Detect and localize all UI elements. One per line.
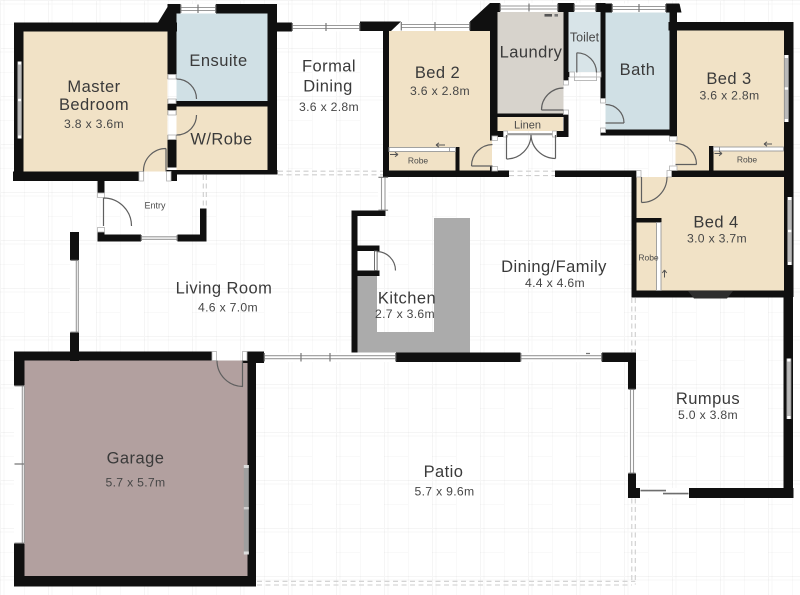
svg-text:Bed 4: Bed 4 <box>693 214 738 232</box>
svg-text:3.6 x 2.8m: 3.6 x 2.8m <box>299 100 359 114</box>
svg-text:Living Room: Living Room <box>176 280 273 298</box>
svg-text:Bedroom: Bedroom <box>59 96 129 114</box>
svg-text:Patio: Patio <box>424 463 464 481</box>
svg-text:Garage: Garage <box>107 450 165 468</box>
svg-text:3.0 x 3.7m: 3.0 x 3.7m <box>687 232 747 246</box>
svg-text:Master: Master <box>67 78 120 96</box>
svg-text:4.6 x 7.0m: 4.6 x 7.0m <box>198 301 258 315</box>
svg-text:Rumpus: Rumpus <box>676 390 740 408</box>
svg-text:5.7 x 9.6m: 5.7 x 9.6m <box>415 485 475 499</box>
svg-text:Dining/Family: Dining/Family <box>501 258 607 276</box>
svg-text:Toilet: Toilet <box>570 31 600 45</box>
svg-text:3.8 x 3.6m: 3.8 x 3.6m <box>64 117 124 131</box>
svg-text:Robe: Robe <box>408 156 429 166</box>
svg-text:Formal: Formal <box>302 58 356 76</box>
svg-text:W/Robe: W/Robe <box>190 131 252 149</box>
svg-text:4.4 x 4.6m: 4.4 x 4.6m <box>525 276 585 290</box>
svg-text:Robe: Robe <box>737 155 758 165</box>
svg-text:5.0 x 3.8m: 5.0 x 3.8m <box>678 408 738 422</box>
svg-text:2.7 x 3.6m: 2.7 x 3.6m <box>375 307 435 321</box>
svg-text:Laundry: Laundry <box>500 44 563 62</box>
svg-text:5.7 x 5.7m: 5.7 x 5.7m <box>106 476 166 490</box>
svg-text:3.6 x 2.8m: 3.6 x 2.8m <box>700 89 760 103</box>
svg-text:Entry: Entry <box>144 201 166 211</box>
svg-text:Bath: Bath <box>620 61 656 79</box>
svg-text:Dining: Dining <box>303 78 352 96</box>
svg-text:3.6 x 2.8m: 3.6 x 2.8m <box>410 84 470 98</box>
svg-text:Kitchen: Kitchen <box>378 290 436 308</box>
svg-text:Bed 2: Bed 2 <box>415 64 460 82</box>
svg-text:Robe: Robe <box>638 253 659 263</box>
svg-text:Bed 3: Bed 3 <box>706 70 751 88</box>
svg-text:Linen: Linen <box>514 120 541 132</box>
svg-text:Ensuite: Ensuite <box>189 52 247 70</box>
